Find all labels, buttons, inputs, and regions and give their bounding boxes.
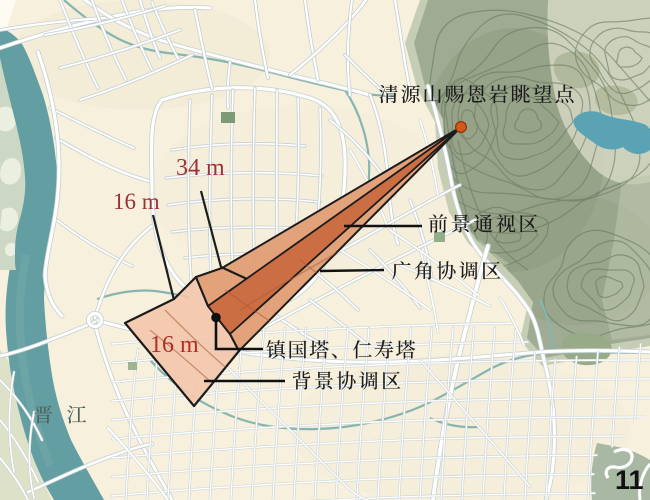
svg-text:34 m: 34 m xyxy=(176,155,225,181)
svg-text:16 m: 16 m xyxy=(150,332,199,358)
svg-text:16 m: 16 m xyxy=(113,189,160,214)
svg-text:11: 11 xyxy=(615,465,644,495)
